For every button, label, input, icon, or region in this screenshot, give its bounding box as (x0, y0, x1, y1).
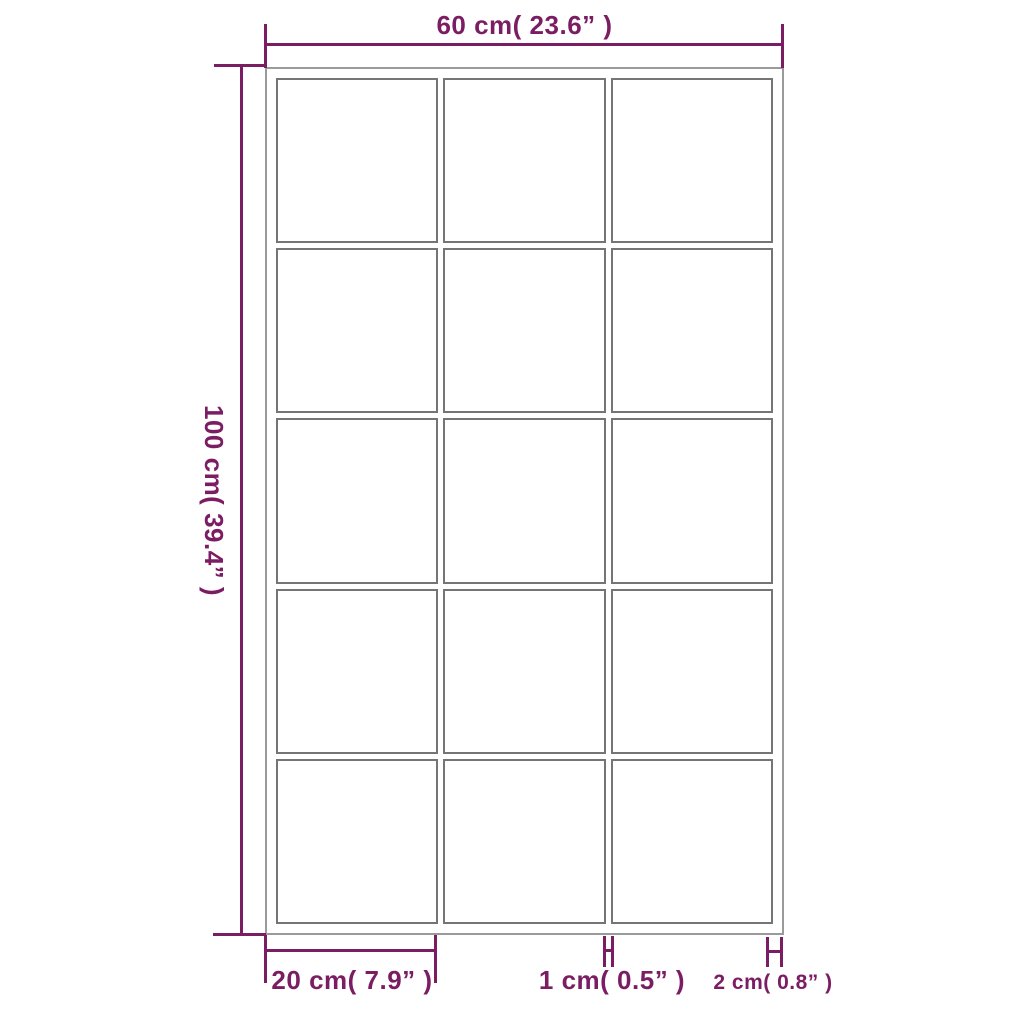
height-dimension-label: 100 cm( 39.4” ) (192, 67, 236, 935)
mirror-pane (276, 418, 438, 583)
mirror-pane (611, 78, 773, 243)
mirror-pane (443, 418, 605, 583)
mirror-pane (611, 759, 773, 924)
mirror-pane (443, 759, 605, 924)
pane-grid (276, 78, 773, 924)
frame-thickness-dimension-label: 2 cm( 0.8” ) (673, 971, 873, 995)
mirror-pane (276, 78, 438, 243)
mirror-pane (276, 759, 438, 924)
width-dimension-label: 60 cm( 23.6” ) (265, 10, 784, 40)
pane-width-dimension-line (266, 949, 436, 952)
mirror-pane (443, 248, 605, 413)
dimension-diagram: 60 cm( 23.6” ) 100 cm( 39.4” ) 20 cm( 7.… (0, 0, 1024, 1024)
width-dimension-line (265, 43, 784, 46)
mullion-width-crossbar (603, 949, 614, 952)
mirror-pane (276, 248, 438, 413)
mirror-pane (611, 248, 773, 413)
mirror-pane (611, 589, 773, 754)
mirror-pane (276, 589, 438, 754)
frame-thickness-crossbar (766, 950, 783, 953)
mirror-pane (443, 589, 605, 754)
pane-width-dimension-label: 20 cm( 7.9” ) (252, 965, 452, 996)
height-dimension-line (240, 66, 243, 936)
mirror-frame (265, 67, 784, 935)
mirror-pane (611, 418, 773, 583)
mirror-pane (443, 78, 605, 243)
